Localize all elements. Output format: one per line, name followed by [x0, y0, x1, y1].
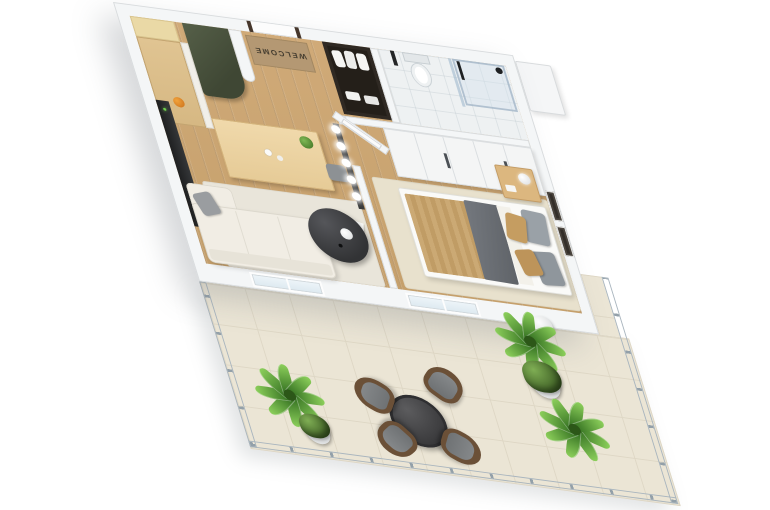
apartment-shell: WELCOME [113, 2, 599, 335]
table-lamp [517, 173, 532, 186]
decor-dot [338, 244, 343, 248]
tableware [264, 149, 273, 156]
floorplan-render: WELCOME [0, 0, 770, 510]
tissue-box [505, 184, 517, 192]
bowl [339, 228, 354, 241]
table-plant [298, 136, 315, 150]
tableware [276, 155, 284, 161]
led-indicator [163, 108, 167, 111]
